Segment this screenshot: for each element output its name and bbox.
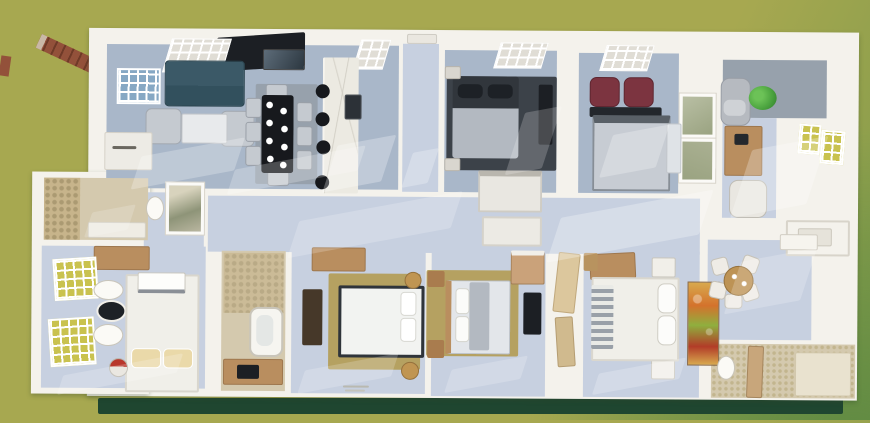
dining-chair [245, 122, 261, 142]
bar-stool [316, 112, 330, 126]
powder-toilet [146, 196, 164, 220]
bedroom2-side-desk [666, 123, 681, 173]
bedroom1-nightstand [445, 66, 461, 79]
bm-nightstand [427, 340, 444, 358]
bl-window [48, 316, 97, 367]
bc-pillow [400, 292, 416, 316]
dining-chair [246, 98, 262, 118]
br-striped-runner [591, 285, 613, 349]
bar-stool [316, 84, 330, 98]
house-plan [0, 0, 870, 423]
brb-partition [746, 346, 764, 399]
dining-chair [245, 146, 261, 166]
wc-toilet-black-lid [96, 300, 126, 322]
bl-desk [94, 246, 150, 270]
bl-window [52, 256, 99, 301]
floor-stamp-marks [343, 385, 369, 387]
bm-wall-tv [523, 293, 541, 335]
bedroom1-pillow [458, 84, 483, 98]
br-pillow [657, 315, 676, 345]
bathtub-basin [256, 315, 273, 346]
floor-plan-scene [0, 0, 870, 420]
front-door [407, 34, 437, 44]
study-cushion [724, 100, 746, 116]
drum-stool [401, 362, 419, 380]
bath-mirror [237, 365, 259, 379]
hallway-wall-art [166, 182, 204, 234]
bedroom2-wall-art [679, 138, 715, 182]
bedroom2-wall-art [679, 93, 715, 137]
bedroom1-nightstand [444, 158, 460, 171]
dining-chair [297, 102, 313, 122]
bm-nightstand [428, 271, 445, 287]
kitchen-sink [345, 94, 362, 119]
br-nightstand [652, 257, 676, 277]
tv-screen [263, 49, 305, 70]
bedroom1-pillow [488, 84, 513, 98]
living-window-blue [117, 68, 161, 104]
coffee-table [181, 113, 227, 143]
wc-basin [93, 324, 123, 346]
sideboard-drawer-slot [112, 146, 136, 149]
maroon-armchair [624, 77, 654, 107]
brb-shower-floor [795, 352, 851, 396]
bm-pillow [455, 288, 469, 314]
bm-dresser [511, 250, 545, 284]
bedroom1-closet [478, 170, 542, 212]
maroon-armchair [590, 77, 620, 107]
bc-wardrobe [302, 289, 322, 345]
drum-stool [405, 272, 422, 289]
wc-basin [93, 280, 123, 300]
bc-pillow [400, 318, 416, 342]
laptop [734, 134, 748, 145]
ceiling-grille-bedroom2 [599, 45, 655, 71]
ceiling-grille-bedroom1 [493, 42, 549, 68]
wing-bathroom-pebble-wall [44, 178, 80, 240]
bathroom-center-pebble [223, 253, 283, 313]
corridor-closet [482, 216, 542, 246]
bedroom1-blanket [452, 108, 518, 158]
bl-headboard [137, 272, 185, 293]
bm-pillow [455, 316, 469, 342]
dining-chair [296, 126, 312, 146]
open-wood-door [555, 316, 576, 367]
br-pillow [657, 283, 676, 313]
br-wardrobe [584, 253, 598, 271]
bm-blanket [469, 282, 489, 350]
brb-toilet [717, 356, 735, 380]
sofa [165, 60, 245, 106]
floor-stamp-marks [345, 389, 365, 391]
plant [749, 86, 777, 110]
